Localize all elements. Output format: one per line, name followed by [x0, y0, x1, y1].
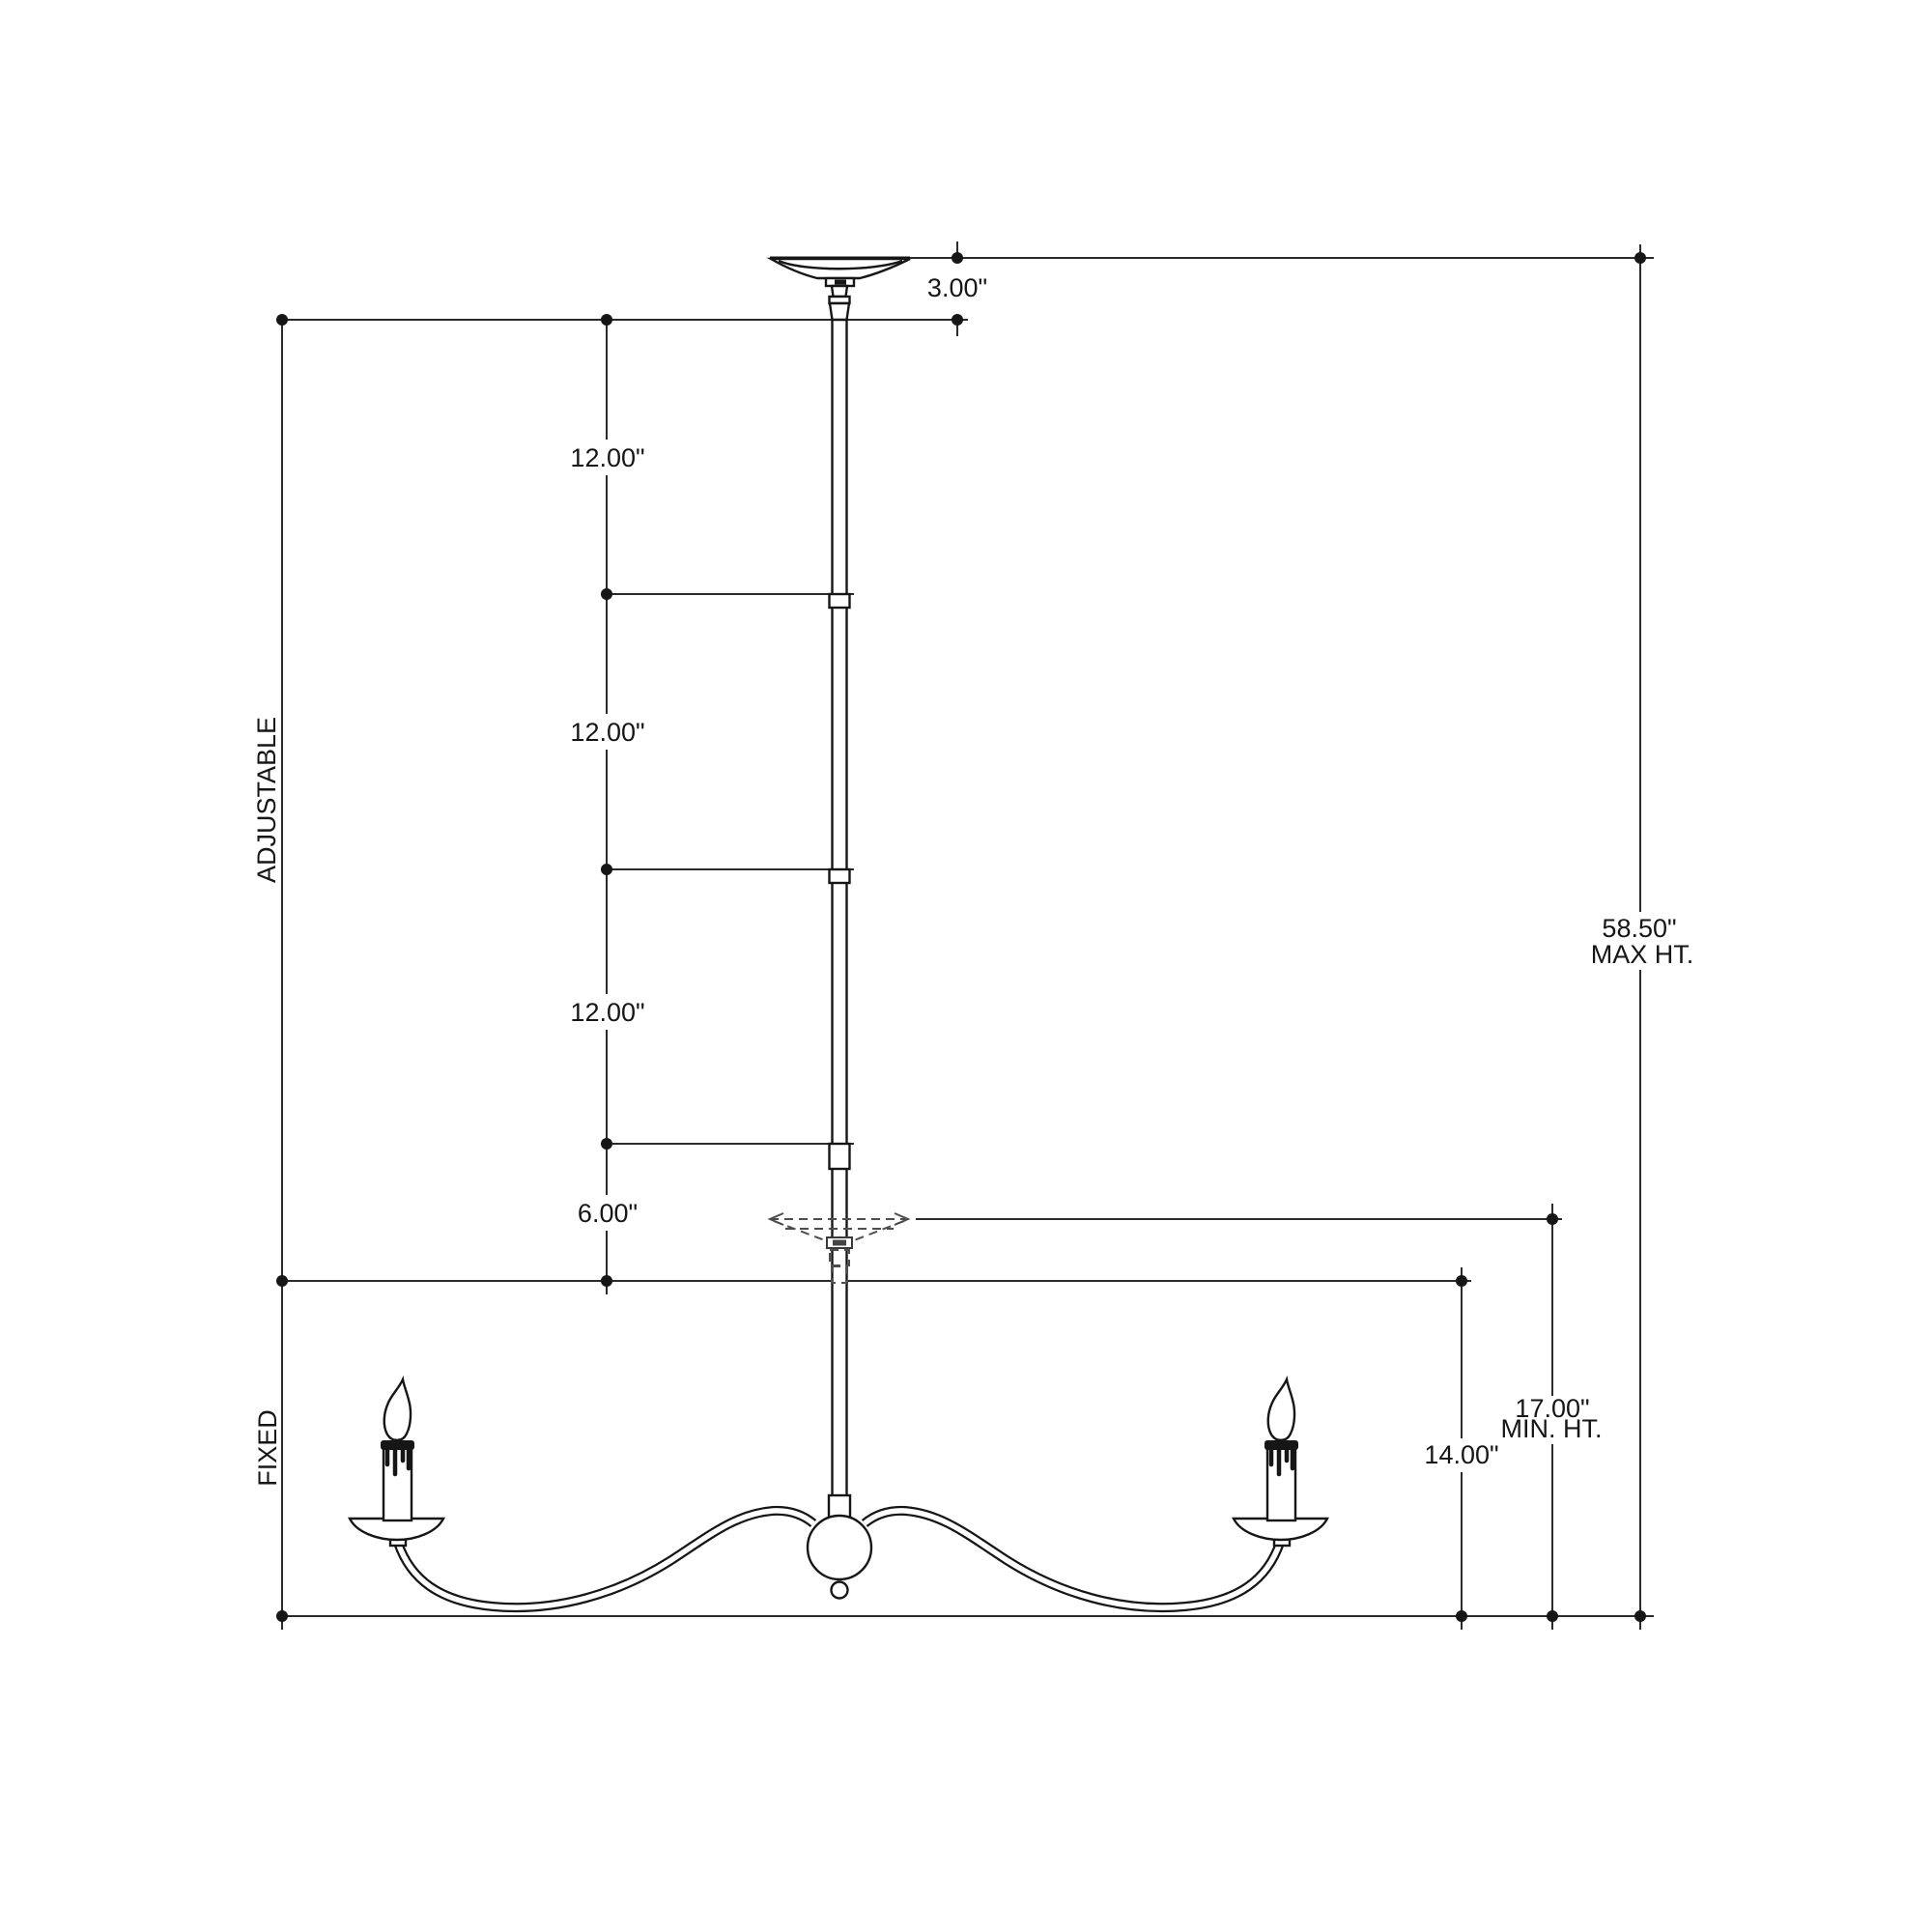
left-candle — [350, 1379, 443, 1546]
chandelier-fixture — [350, 258, 1327, 1607]
center-ball — [808, 1516, 871, 1579]
section-label-adjustable: ADJUSTABLE — [252, 717, 281, 883]
drawing-canvas: 3.00" 12.00" 12.00" 12.00" 6.00" 58.50" … — [0, 0, 1932, 1932]
ghost-check-ring-center — [833, 1240, 846, 1246]
ghost-cone-left — [774, 1221, 825, 1240]
rod-coupling-3 — [830, 1144, 850, 1169]
ghost-cone-right — [854, 1221, 904, 1240]
dim-label-min-height-suffix: MIN. HT. — [1501, 1414, 1603, 1443]
right-candle — [1234, 1379, 1327, 1546]
canopy-taper — [830, 303, 849, 320]
section-label-fixed: FIXED — [253, 1409, 282, 1487]
left-bobeche — [350, 1519, 443, 1540]
dim-label-segment-4: 6.00" — [578, 1199, 638, 1228]
dim-label-segment-1: 12.00" — [570, 443, 644, 472]
right-arm-core — [865, 1511, 1280, 1607]
dim-label-canopy-height: 3.00" — [927, 273, 987, 302]
hang-rod — [833, 302, 847, 1496]
finial-ball — [832, 1582, 848, 1599]
left-candle-flame — [384, 1379, 411, 1440]
dim-label-fixture-height: 14.00" — [1424, 1440, 1498, 1469]
canopy-neck — [832, 286, 847, 297]
dimension-lines — [282, 241, 1654, 1630]
dim-label-max-height-value: 58.50" — [1602, 914, 1676, 943]
dim-label-segment-2: 12.00" — [570, 718, 644, 747]
rod-coupling-1 — [830, 594, 850, 608]
dimension-dots — [276, 252, 1646, 1622]
canopy-check-ring-center — [835, 280, 846, 285]
rod-coupling-2 — [830, 869, 850, 883]
right-candle-flame — [1268, 1379, 1294, 1440]
left-arm-core — [398, 1511, 813, 1607]
dimension-labels: 3.00" 12.00" 12.00" 12.00" 6.00" 58.50" … — [252, 273, 1693, 1487]
right-bobeche — [1234, 1519, 1327, 1540]
dim-label-max-height-suffix: MAX HT. — [1591, 940, 1694, 969]
dim-label-segment-3: 12.00" — [570, 998, 644, 1027]
center-hub — [829, 1495, 850, 1518]
ceiling-canopy — [770, 258, 910, 320]
chandelier-dimension-drawing: 3.00" 12.00" 12.00" 12.00" 6.00" 58.50" … — [0, 0, 1932, 1932]
